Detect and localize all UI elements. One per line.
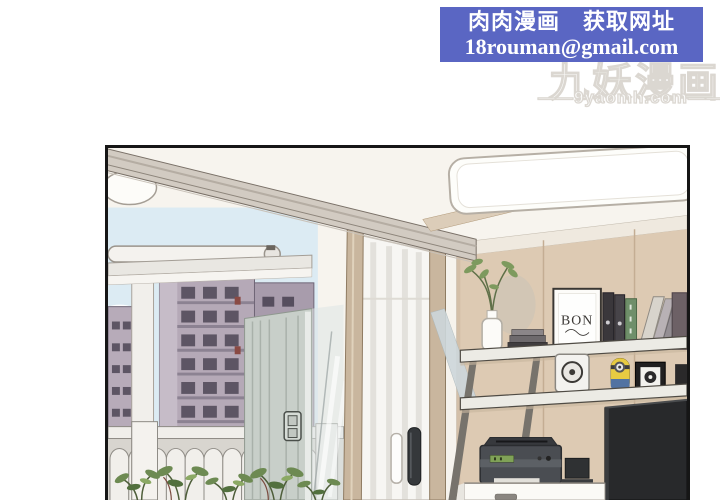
ad-banner: 肉肉漫画 获取网址 18rouman@gmail.com bbox=[440, 7, 703, 62]
ad-banner-email: 18rouman@gmail.com bbox=[465, 34, 679, 60]
door-latch bbox=[284, 412, 301, 441]
art-print-text: BON bbox=[561, 312, 593, 327]
speaker bbox=[555, 354, 589, 392]
small-device bbox=[561, 458, 593, 483]
comic-panel: BON bbox=[105, 145, 690, 500]
watermark-site-text: 9yaomh.com bbox=[574, 88, 688, 107]
printer bbox=[480, 438, 561, 484]
room-illustration: BON bbox=[108, 148, 687, 500]
tv-screen bbox=[605, 400, 687, 500]
minion-figurine bbox=[611, 358, 630, 391]
watermark-dash-right: —— bbox=[688, 88, 720, 107]
cabinet bbox=[456, 483, 604, 500]
ad-banner-title: 肉肉漫画 获取网址 bbox=[468, 9, 675, 34]
sliding-glass-door bbox=[360, 235, 431, 500]
comic-page: 九妖漫画 ——9yaomh.com—— 肉肉漫画 获取网址 18rouman@g… bbox=[0, 0, 720, 500]
cabinet-handle bbox=[495, 494, 517, 500]
bon-art-print: BON bbox=[553, 289, 601, 348]
watermark-dash-left: —— bbox=[538, 88, 574, 107]
glass-reflection bbox=[312, 305, 346, 500]
door-handle bbox=[408, 428, 421, 486]
watermark-site: ——9yaomh.com—— bbox=[538, 88, 720, 108]
door-handle-far bbox=[391, 434, 402, 484]
